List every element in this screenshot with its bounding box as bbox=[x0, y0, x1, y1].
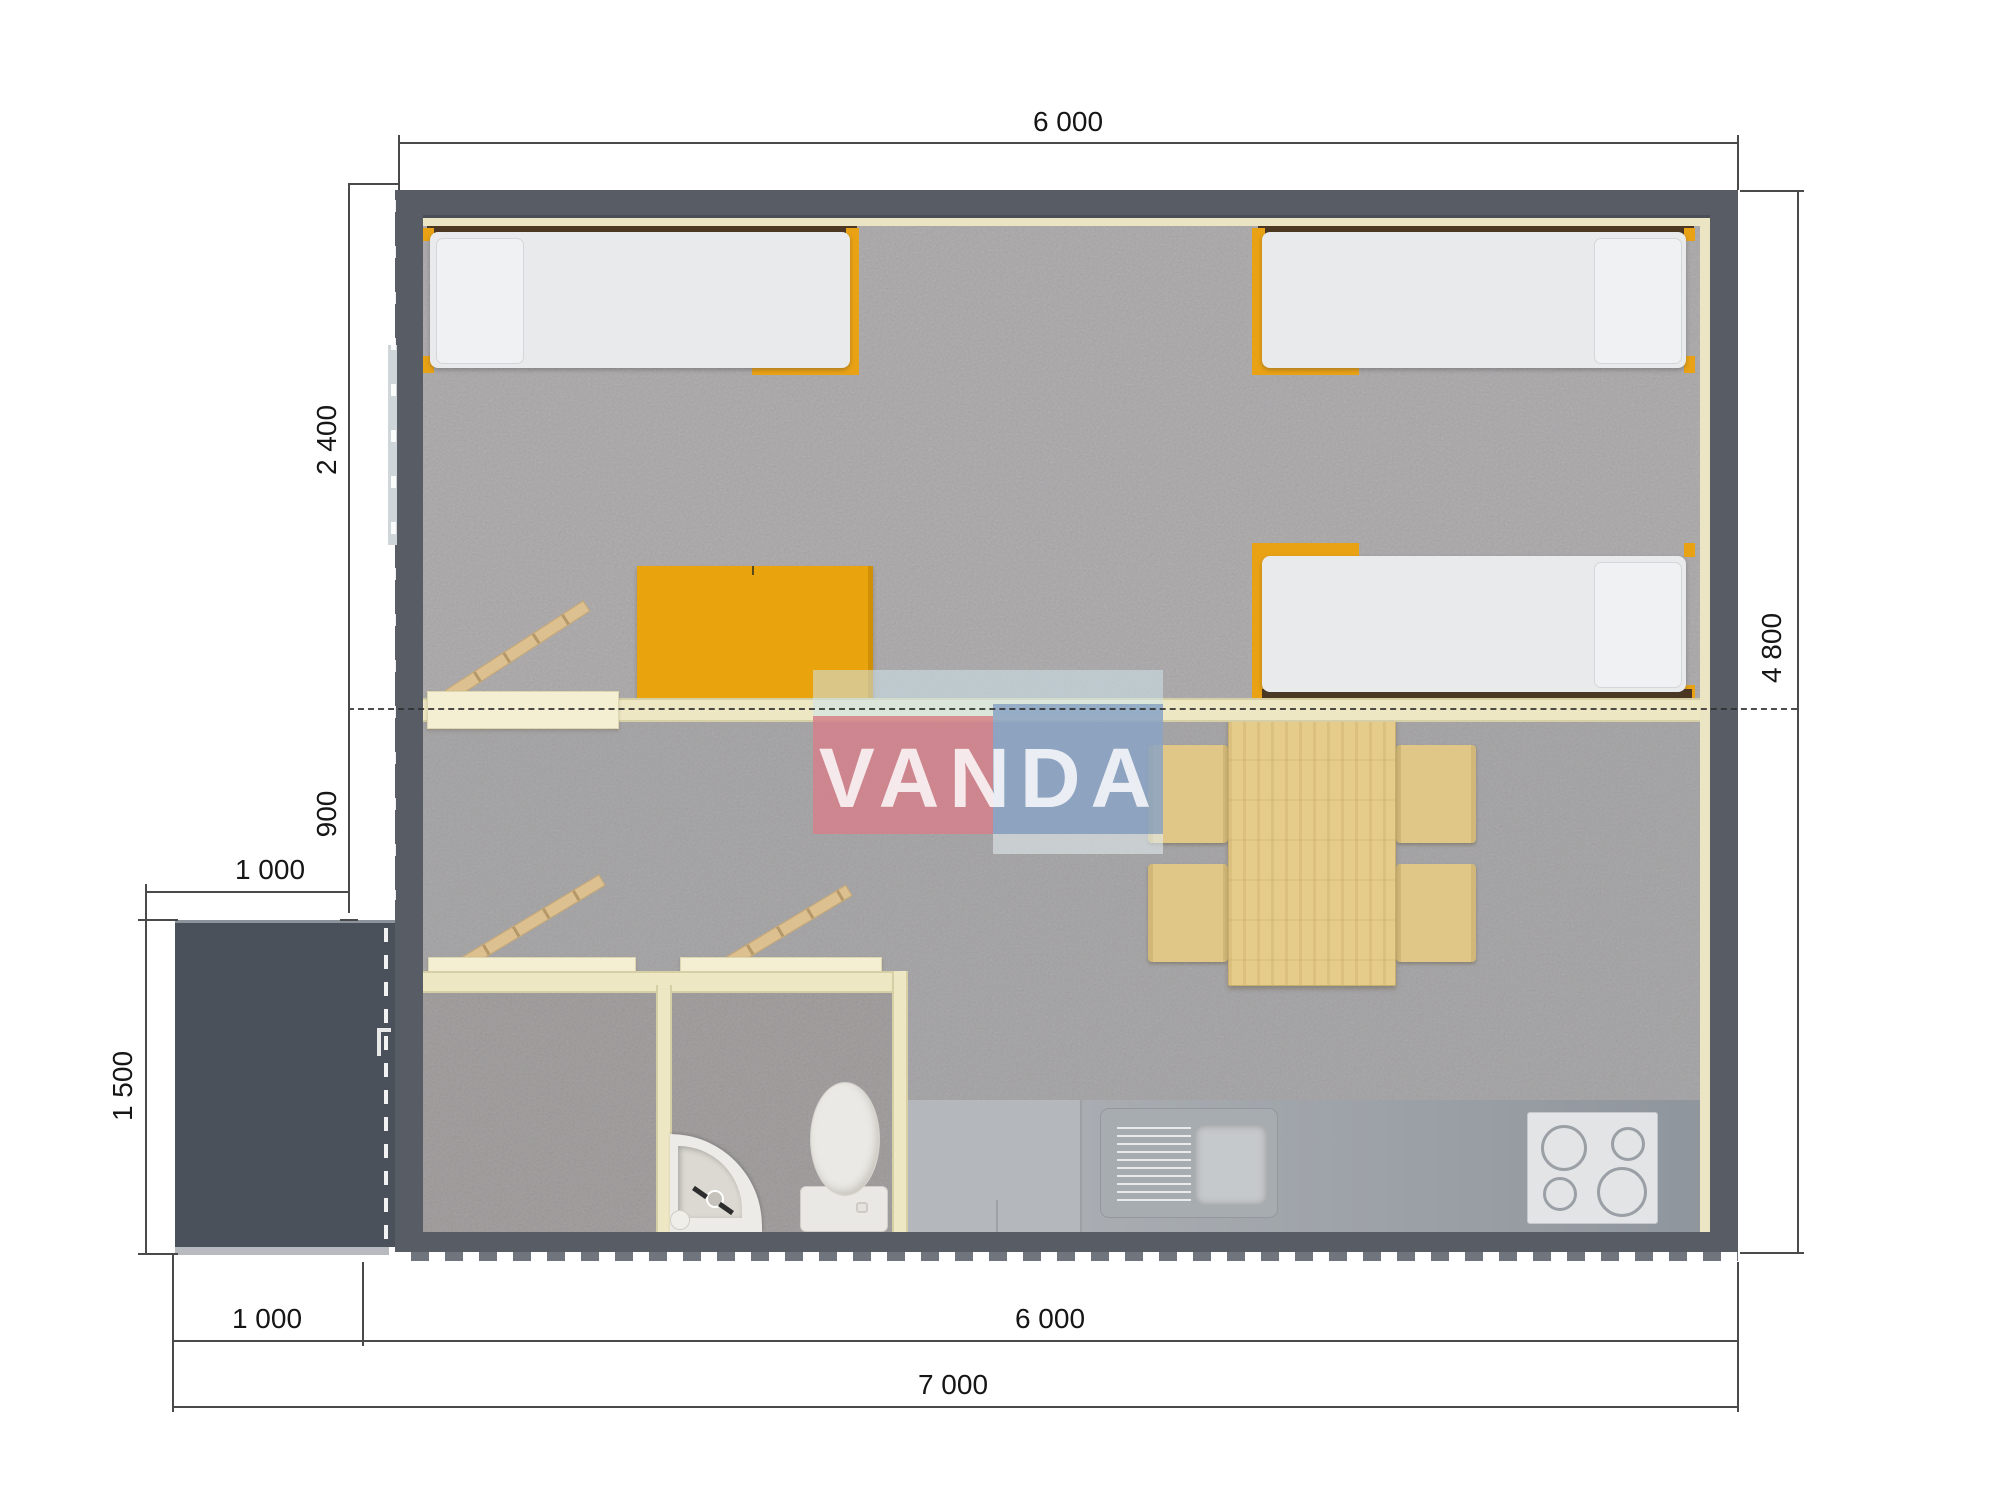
stove bbox=[1527, 1112, 1658, 1224]
dim-bottom-total-width-label: 7 000 bbox=[873, 1368, 1033, 1402]
dim-porch-ext-top bbox=[138, 919, 178, 921]
burner-large-bottom-right bbox=[1597, 1167, 1647, 1217]
dim-top-ext-right bbox=[1737, 135, 1739, 190]
burner-large-top-left bbox=[1541, 1125, 1587, 1171]
dining-table bbox=[1228, 718, 1396, 986]
wall-top bbox=[395, 190, 1738, 218]
toilet-flush-button bbox=[856, 1202, 868, 1213]
wall-trim-right bbox=[1700, 226, 1710, 1232]
sink-bottle bbox=[670, 1210, 690, 1230]
porch-edge-strip bbox=[175, 1247, 389, 1255]
dining-chair-left-bottom bbox=[1148, 864, 1228, 962]
sink-drainboard bbox=[1117, 1127, 1191, 1203]
toilet bbox=[798, 1080, 890, 1232]
wardrobe-top-mark bbox=[752, 566, 754, 575]
dining-chair-right-top bbox=[1396, 745, 1476, 843]
burner-medium-top-right bbox=[1611, 1127, 1645, 1161]
partition-sliding-door bbox=[427, 691, 619, 729]
dim-bottom-porch-width-label: 1 000 bbox=[187, 1302, 347, 1336]
dim-bottom-line2 bbox=[172, 1406, 1739, 1408]
dining-chair-right-bottom bbox=[1396, 864, 1476, 962]
dim-right-ext-top bbox=[1740, 190, 1804, 192]
dim-right-ext-bottom bbox=[1740, 1252, 1804, 1254]
dim-porch-left-line bbox=[145, 884, 147, 1255]
dim-porch-top-line bbox=[145, 891, 350, 893]
dim-top-line bbox=[398, 142, 1738, 144]
dim-bottom-ext-porchleft bbox=[172, 1255, 174, 1412]
watermark-logo-text: VANDA bbox=[820, 730, 1160, 826]
bottom-deck-dashed-edge bbox=[395, 1252, 1738, 1261]
kitchen-cabinet-left bbox=[908, 1100, 1082, 1232]
dim-left-ext-top bbox=[348, 183, 398, 185]
dim-right-line bbox=[1797, 190, 1799, 1253]
kitchen-sink-basin bbox=[1195, 1125, 1267, 1205]
dim-porch-top-width-label: 1 000 bbox=[190, 853, 350, 887]
wall-trim-top bbox=[423, 218, 1710, 226]
dim-hall-depth-label: 900 bbox=[311, 764, 343, 864]
dim-left-tick-porch bbox=[340, 919, 358, 921]
dim-top-ext-left bbox=[398, 135, 400, 190]
entrance-door-dashed-line bbox=[384, 928, 388, 1244]
bed3-pillow bbox=[1594, 562, 1682, 688]
toilet-lid bbox=[810, 1082, 880, 1196]
dim-bottom-ext-mid bbox=[362, 1262, 364, 1346]
dim-bottom-line1 bbox=[172, 1340, 1739, 1342]
porch-deck bbox=[175, 920, 395, 1247]
entrance-door-handle-icon bbox=[377, 1028, 391, 1056]
dim-bottom-house-width-label: 6 000 bbox=[970, 1302, 1130, 1336]
dim-left-line bbox=[348, 183, 350, 913]
burner-small-bottom-left bbox=[1543, 1177, 1577, 1211]
kitchen-cabinet-seam bbox=[996, 1200, 998, 1232]
bathroom-wall-right bbox=[892, 971, 908, 1232]
wall-left bbox=[395, 190, 423, 1252]
kitchen-sink-unit bbox=[1100, 1108, 1278, 1218]
floor-plan-canvas: VANDA 6 000 2 400 900 1 000 1 500 4 800 … bbox=[0, 0, 2000, 1502]
wall-bottom bbox=[395, 1232, 1738, 1252]
partition-dashed-reference-line bbox=[348, 708, 1797, 710]
wall-right bbox=[1710, 190, 1738, 1252]
bed3-post-top bbox=[1684, 543, 1695, 557]
watermark-bottom-strip bbox=[993, 834, 1163, 854]
dim-porch-depth-label: 1 500 bbox=[107, 1026, 139, 1146]
bed2-pillow bbox=[1594, 238, 1682, 364]
dim-bottom-ext-right bbox=[1737, 1262, 1739, 1412]
left-wall-dashed-edge bbox=[391, 200, 396, 900]
dim-house-depth-label: 4 800 bbox=[1756, 588, 1788, 708]
dim-bedroom-depth-label: 2 400 bbox=[311, 380, 343, 500]
bed1-pillow bbox=[436, 238, 524, 364]
dim-top-width-label: 6 000 bbox=[988, 104, 1148, 140]
